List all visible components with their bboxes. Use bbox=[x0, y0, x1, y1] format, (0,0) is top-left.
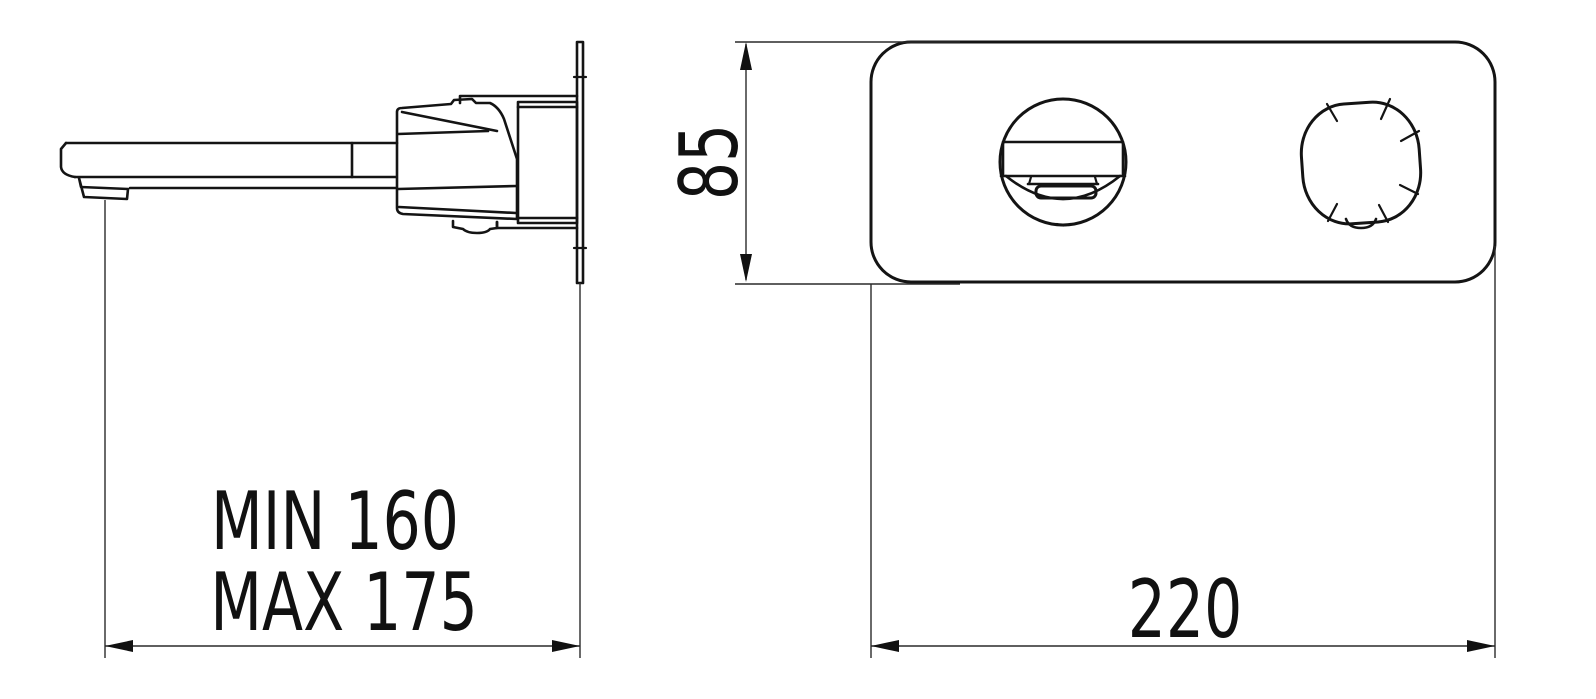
knob-tick-4 bbox=[1400, 185, 1418, 194]
wall-plate-side bbox=[577, 42, 583, 283]
dimension-plate-width: 220 bbox=[871, 246, 1495, 658]
arrowhead-right-icon bbox=[1467, 640, 1495, 652]
arrowhead-right-icon bbox=[552, 640, 580, 652]
handle-knob-front-group bbox=[1298, 99, 1424, 227]
dimension-label-height: 85 bbox=[662, 124, 756, 200]
arrowhead-left-icon bbox=[105, 640, 133, 652]
arrowhead-up-icon bbox=[740, 42, 752, 70]
handle-facet-line-2 bbox=[398, 131, 488, 134]
handle-facet-line-3 bbox=[398, 186, 517, 189]
knob-tick-6 bbox=[1328, 204, 1337, 221]
arrowhead-down-icon bbox=[740, 254, 752, 282]
arrowhead-left-icon bbox=[871, 640, 899, 652]
handle-side-outline bbox=[397, 99, 517, 219]
aerator-side bbox=[79, 178, 128, 199]
front-view-plate bbox=[871, 42, 1495, 282]
spout-tip-edge bbox=[61, 143, 75, 177]
dimension-label-width: 220 bbox=[1128, 562, 1243, 656]
handle-knob-front bbox=[1298, 99, 1424, 227]
knob-tick-5 bbox=[1379, 205, 1388, 222]
handle-under-tab bbox=[453, 221, 497, 233]
handle-facet-line-1 bbox=[402, 112, 497, 131]
faucet-technical-drawing: MIN 160 MAX 175 85 bbox=[0, 0, 1596, 699]
spout-escutcheon-front bbox=[1000, 99, 1126, 225]
spout-front-band bbox=[1001, 142, 1125, 176]
dimension-label-max: MAX 175 bbox=[210, 555, 477, 649]
dimension-label-min: MIN 160 bbox=[211, 474, 459, 568]
technical-drawing-page: MIN 160 MAX 175 85 bbox=[0, 0, 1596, 699]
wall-plate-front bbox=[871, 42, 1495, 282]
handle-bottom-facet bbox=[399, 207, 516, 213]
dimension-projection: MIN 160 MAX 175 bbox=[105, 200, 580, 658]
side-view-spout bbox=[61, 42, 586, 283]
mixer-body-side bbox=[518, 102, 577, 223]
dimension-plate-height: 85 bbox=[662, 42, 960, 284]
